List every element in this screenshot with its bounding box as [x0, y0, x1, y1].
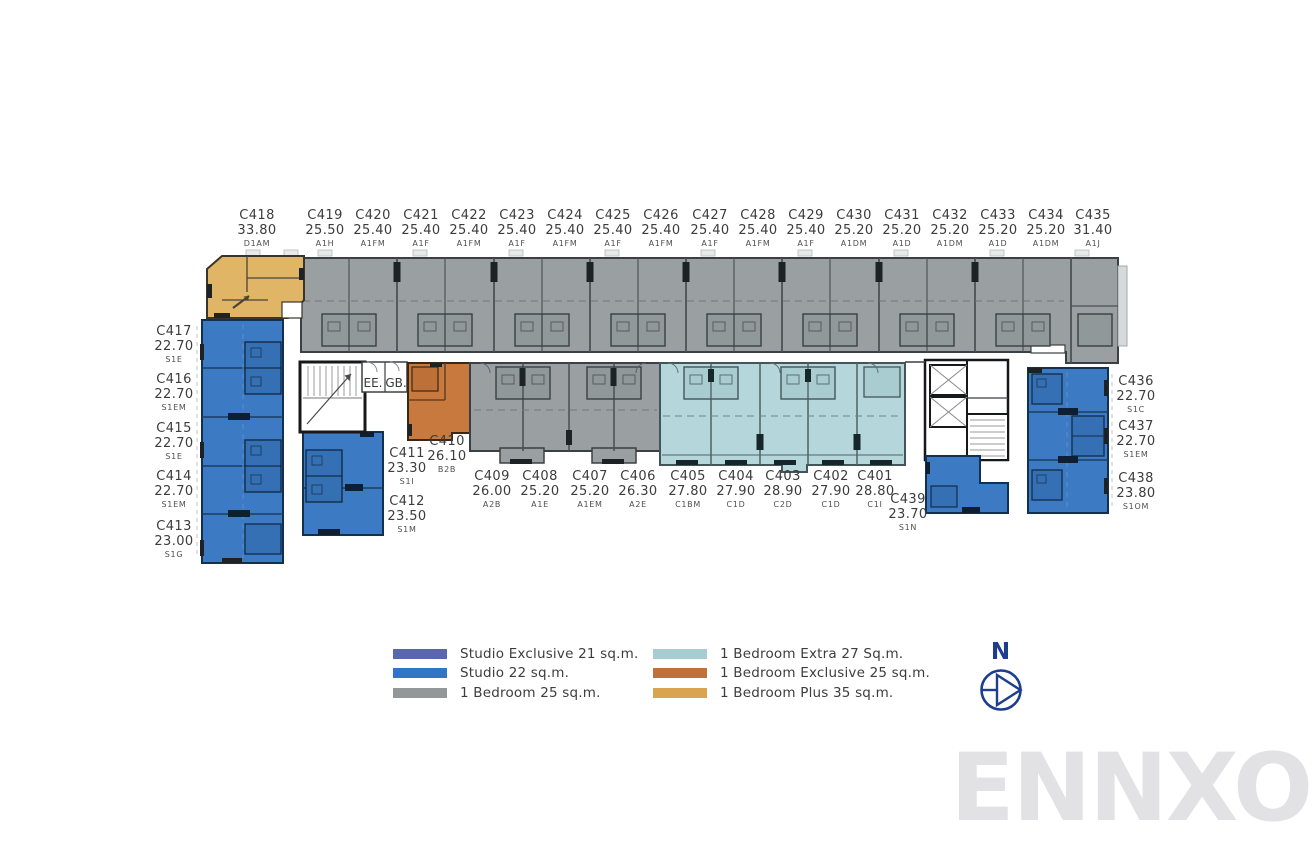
legend-item-one-bedroom-exclusive: 1 Bedroom Exclusive 25 sq.m. — [653, 665, 930, 682]
mid-one-bedroom-units — [470, 363, 660, 464]
unit-label-c415: C41522.70S1E — [139, 421, 209, 462]
unit-label-c412: C41223.50S1M — [375, 494, 439, 535]
elevator-core — [905, 360, 1008, 460]
legend-item-one-bedroom-extra: 1 Bedroom Extra 27 Sq.m. — [653, 645, 930, 662]
legend-item-one-bedroom-plus: 1 Bedroom Plus 35 sq.m. — [653, 684, 930, 701]
unit-id: C436 — [1101, 374, 1171, 389]
legend-label: Studio 22 sq.m. — [460, 665, 569, 681]
unit-area: 22.70 — [139, 387, 209, 402]
ennxo-watermark: ENNXO — [950, 742, 1311, 836]
unit-label-c417: C41722.70S1E — [139, 324, 209, 365]
legend-item-one-bedroom: 1 Bedroom 25 sq.m. — [393, 684, 638, 701]
unit-area: 23.70 — [876, 507, 940, 522]
unit-area: 23.80 — [1101, 486, 1171, 501]
unit-label-c418: C41833.80D1AM — [225, 208, 289, 249]
unit-type: D1AM — [225, 239, 289, 249]
legend-label: 1 Bedroom Extra 27 Sq.m. — [720, 646, 903, 662]
unit-area: 33.80 — [225, 223, 289, 238]
unit-id: C413 — [139, 519, 209, 534]
legend-label: 1 Bedroom Exclusive 25 sq.m. — [720, 665, 930, 681]
legend-item-studio: Studio 22 sq.m. — [393, 665, 638, 682]
left-column-studio-units — [197, 320, 283, 563]
c411-c412-studio-block — [303, 432, 383, 535]
unit-area: 22.70 — [139, 339, 209, 354]
compass-icon — [972, 664, 1030, 718]
unit-type: S1E — [139, 452, 209, 462]
teal-one-bedroom-extra-units — [660, 363, 905, 472]
unit-type: S1G — [139, 550, 209, 560]
unit-area: 31.40 — [1061, 223, 1125, 238]
unit-area: 22.70 — [1101, 389, 1171, 404]
unit-type: S1E — [139, 355, 209, 365]
room-label-gb: GB. — [383, 376, 409, 390]
unit-type: S1I — [375, 477, 439, 487]
unit-id: C410 — [415, 434, 479, 449]
legend-swatch-one-bedroom-exclusive — [653, 668, 707, 678]
unit-id: C401 — [843, 469, 907, 484]
legend-swatch-one-bedroom-plus — [653, 688, 707, 698]
unit-type: A1J — [1061, 239, 1125, 249]
top-bar-one-bedroom-units — [246, 250, 1127, 363]
unit-type: S1C — [1101, 405, 1171, 415]
legend-left-column: Studio Exclusive 21 sq.m. Studio 22 sq.m… — [393, 645, 638, 704]
unit-label-c414: C41422.70S1EM — [139, 469, 209, 510]
unit-id: C415 — [139, 421, 209, 436]
legend-swatch-one-bedroom-extra — [653, 649, 707, 659]
unit-id: C412 — [375, 494, 439, 509]
floor-plan-page: C41833.80D1AM C41925.50A1H C42025.40A1FM… — [0, 0, 1316, 858]
north-compass: N — [972, 640, 1030, 722]
legend-label: Studio Exclusive 21 sq.m. — [460, 646, 638, 662]
unit-id: C416 — [139, 372, 209, 387]
unit-type: S1N — [876, 523, 940, 533]
unit-type: S1EM — [139, 500, 209, 510]
compass-north-label: N — [972, 640, 1030, 664]
legend-item-studio-exclusive: Studio Exclusive 21 sq.m. — [393, 645, 638, 662]
unit-type: S1EM — [1101, 450, 1171, 460]
unit-area: 23.00 — [139, 534, 209, 549]
unit-type: S1OM — [1101, 502, 1171, 512]
legend-label: 1 Bedroom Plus 35 sq.m. — [720, 685, 893, 701]
unit-label-c435: C43531.40A1J — [1061, 208, 1125, 249]
unit-area: 22.70 — [139, 484, 209, 499]
unit-label-c438: C43823.80S1OM — [1101, 471, 1171, 512]
unit-id: C435 — [1061, 208, 1125, 223]
unit-label-c436: C43622.70S1C — [1101, 374, 1171, 415]
unit-id: C438 — [1101, 471, 1171, 486]
unit-c410-one-bedroom-exclusive — [408, 363, 478, 440]
unit-label-c439: C43923.70S1N — [876, 492, 940, 533]
legend-swatch-studio — [393, 668, 447, 678]
unit-label-c413: C41323.00S1G — [139, 519, 209, 560]
unit-area: 23.50 — [375, 509, 439, 524]
unit-id: C439 — [876, 492, 940, 507]
stairwell-west — [300, 362, 365, 432]
unit-id: C418 — [225, 208, 289, 223]
unit-area: 26.10 — [415, 449, 479, 464]
unit-id: C417 — [139, 324, 209, 339]
legend-swatch-studio-exclusive — [393, 649, 447, 659]
unit-label-c416: C41622.70S1EM — [139, 372, 209, 413]
unit-area: 22.70 — [1101, 434, 1171, 449]
unit-type: S1EM — [139, 403, 209, 413]
legend-label: 1 Bedroom 25 sq.m. — [460, 685, 601, 701]
unit-c418-one-bedroom-plus — [207, 256, 304, 318]
legend-swatch-one-bedroom — [393, 688, 447, 698]
unit-area: 22.70 — [139, 436, 209, 451]
legend-right-column: 1 Bedroom Extra 27 Sq.m. 1 Bedroom Exclu… — [653, 645, 930, 704]
unit-type: S1M — [375, 525, 439, 535]
unit-label-c437: C43722.70S1EM — [1101, 419, 1171, 460]
right-column-studio-units — [1028, 368, 1112, 513]
unit-id: C414 — [139, 469, 209, 484]
unit-id: C437 — [1101, 419, 1171, 434]
